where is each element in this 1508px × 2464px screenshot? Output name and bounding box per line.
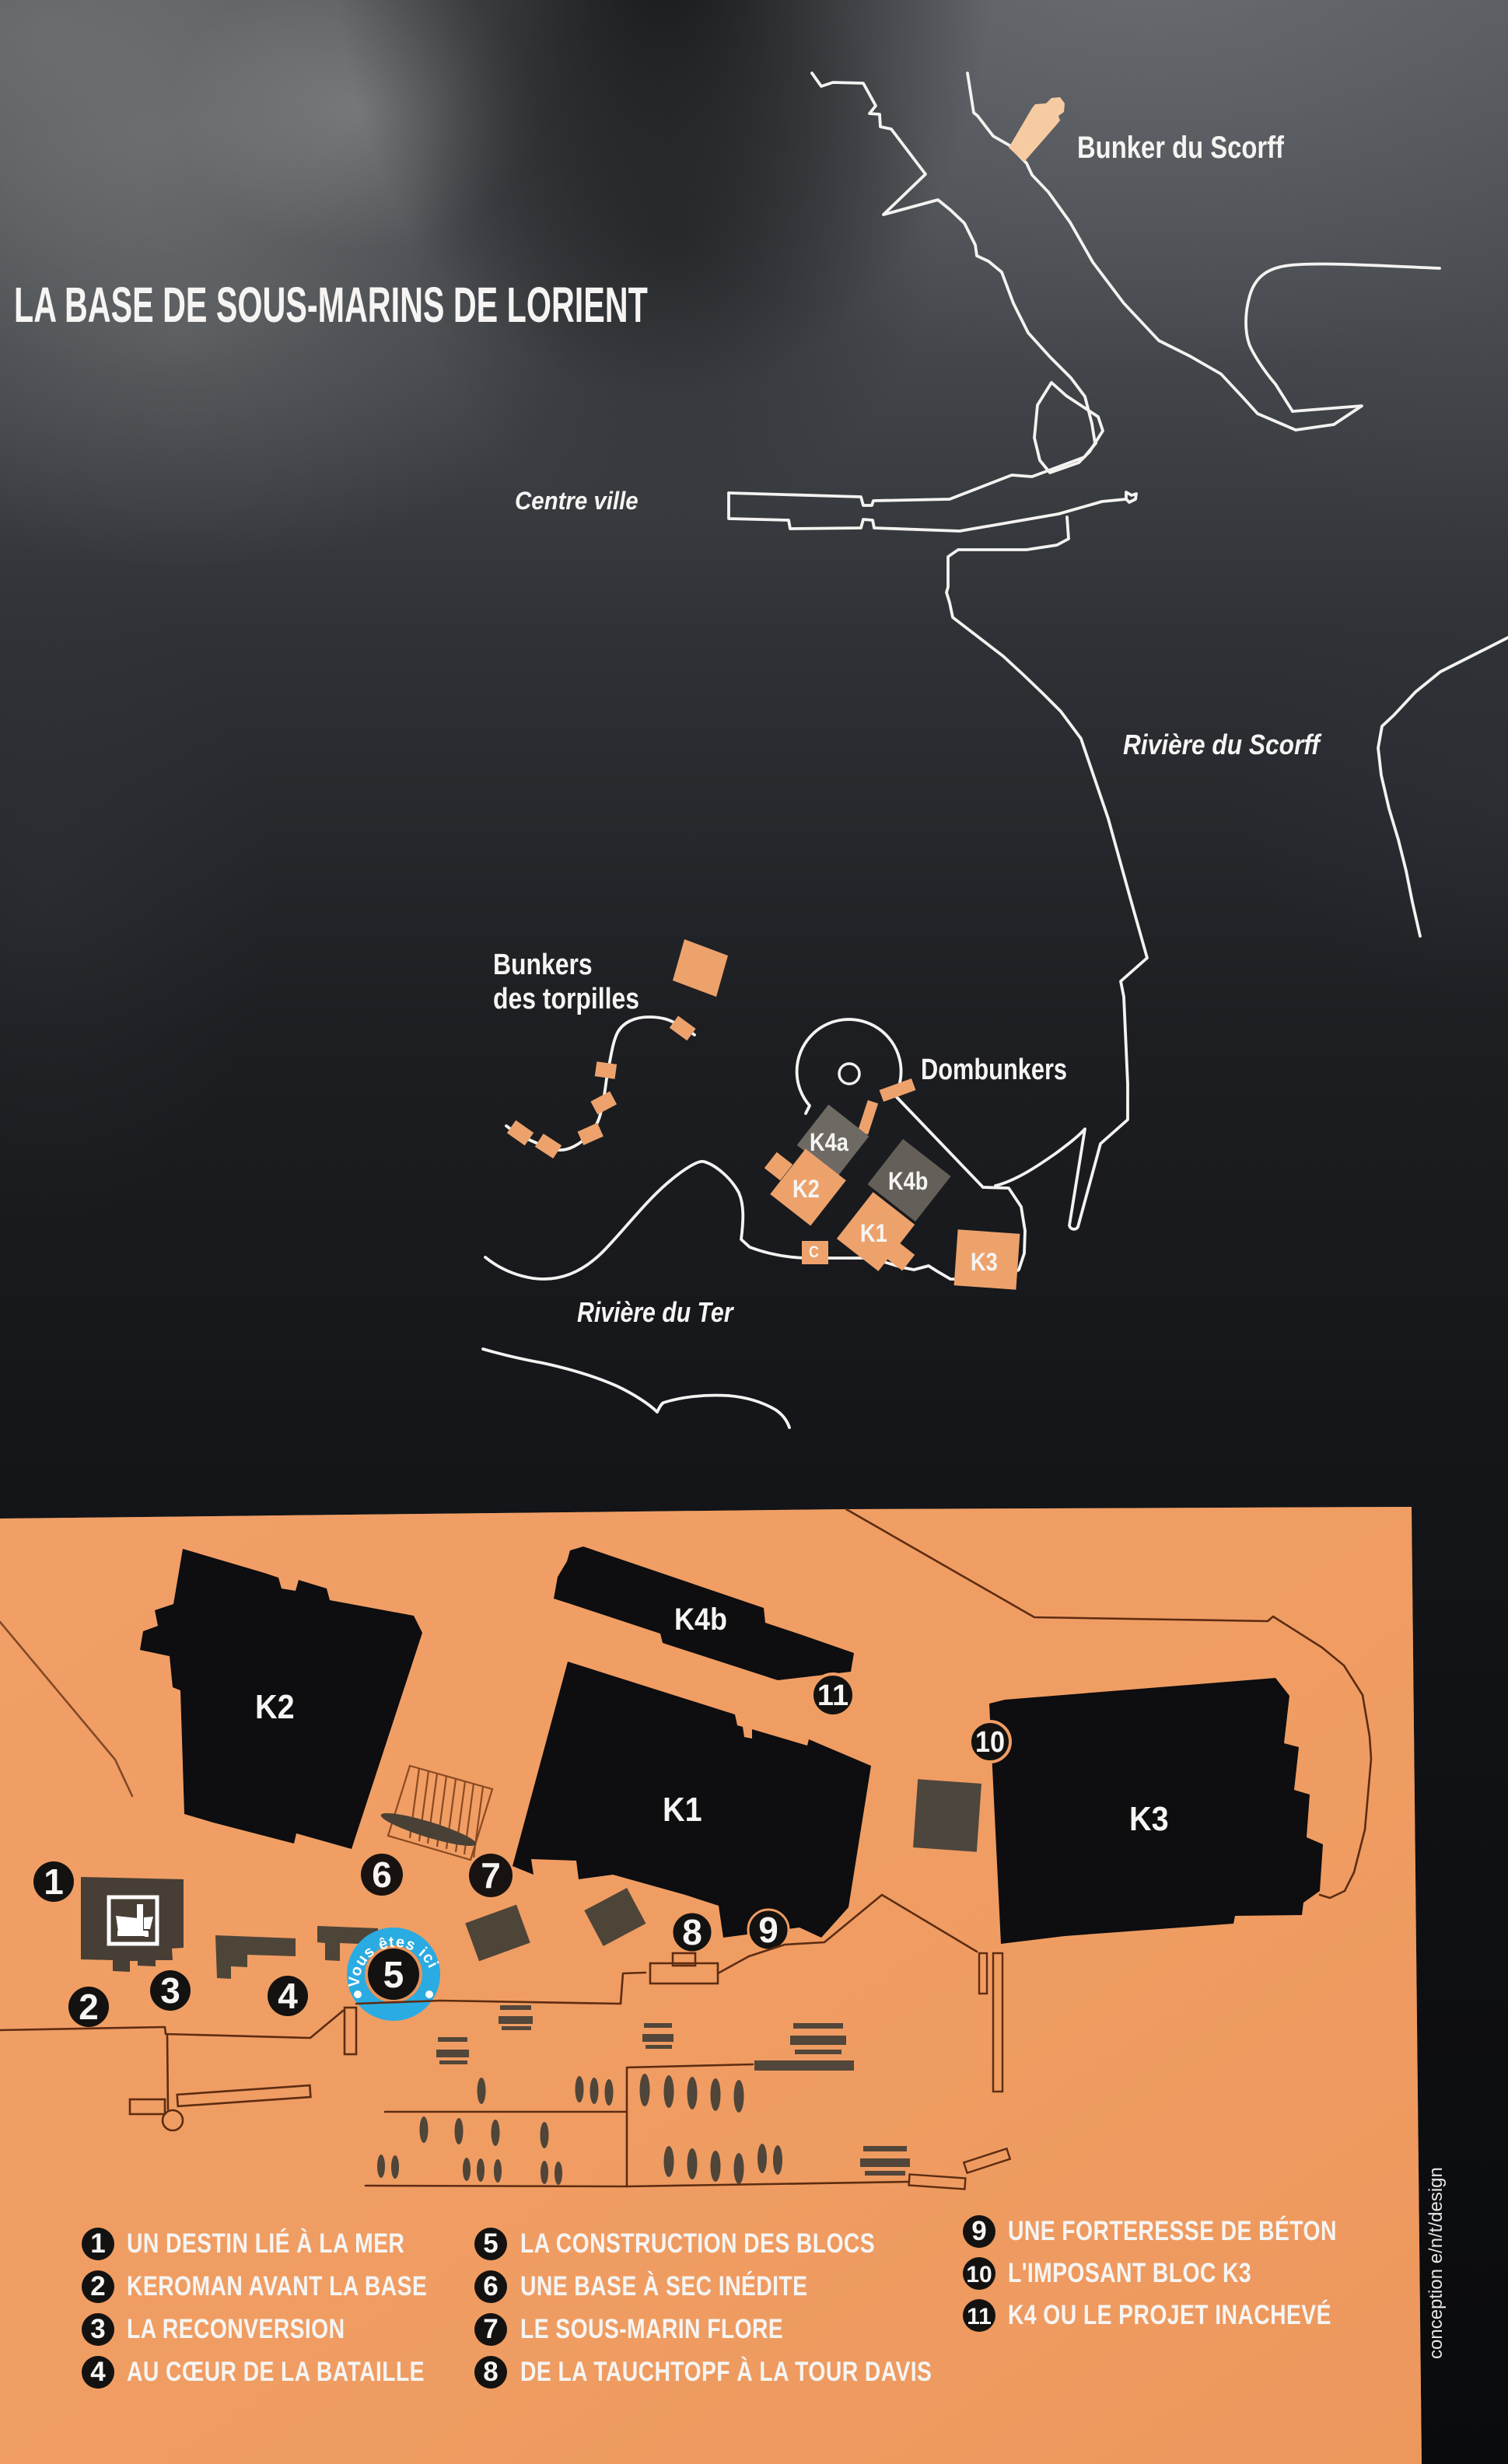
svg-text:2: 2 [79,1987,99,2027]
svg-text:2: 2 [90,2271,105,2301]
svg-text:Rivière du Scorff: Rivière du Scorff [1123,729,1322,760]
svg-text:UN DESTIN LIÉ À LA MER: UN DESTIN LIÉ À LA MER [127,2228,404,2259]
svg-text:LE SOUS-MARIN FLORE: LE SOUS-MARIN FLORE [520,2313,783,2344]
svg-text:K3: K3 [971,1249,998,1277]
svg-text:Bunker du Scorff: Bunker du Scorff [1077,130,1285,165]
svg-text:LA BASE DE SOUS-MARINS DE LORI: LA BASE DE SOUS-MARINS DE LORIENT [14,278,648,333]
svg-text:K3: K3 [1129,1799,1169,1837]
svg-text:4: 4 [278,1976,298,2016]
svg-text:8: 8 [682,1912,702,1952]
svg-text:Centre ville: Centre ville [515,487,639,515]
svg-text:K1: K1 [663,1790,702,1828]
svg-text:6: 6 [483,2271,498,2301]
svg-text:K2: K2 [255,1687,295,1725]
svg-text:K4b: K4b [674,1602,727,1637]
svg-text:7: 7 [481,1855,501,1896]
svg-text:7: 7 [483,2314,498,2344]
svg-text:K1: K1 [860,1220,887,1248]
svg-text:Rivière du Ter: Rivière du Ter [577,1298,734,1329]
svg-text:9: 9 [758,1910,778,1950]
svg-text:LA CONSTRUCTION DES BLOCS: LA CONSTRUCTION DES BLOCS [520,2228,875,2259]
svg-text:UNE FORTERESSE DE BÉTON: UNE FORTERESSE DE BÉTON [1008,2215,1337,2246]
svg-text:11: 11 [967,2304,992,2329]
svg-text:UNE BASE À SEC INÉDITE: UNE BASE À SEC INÉDITE [520,2270,807,2301]
svg-text:K4a: K4a [810,1129,848,1157]
svg-text:11: 11 [817,1679,848,1712]
svg-text:DE LA TAUCHTOPF À LA TOUR DAVI: DE LA TAUCHTOPF À LA TOUR DAVIS [520,2356,932,2387]
svg-text:1: 1 [44,1861,64,1902]
svg-text:3: 3 [160,1970,180,2011]
svg-text:1: 1 [90,2228,105,2259]
svg-text:Dombunkers: Dombunkers [921,1054,1067,1086]
svg-text:10: 10 [966,2262,992,2288]
svg-text:AU CŒUR DE LA BATAILLE: AU CŒUR DE LA BATAILLE [127,2356,425,2387]
svg-text:10: 10 [975,1725,1005,1758]
svg-text:LA RECONVERSION: LA RECONVERSION [127,2313,345,2344]
svg-text:5: 5 [383,1955,404,1996]
svg-text:L'IMPOSANT BLOC K3: L'IMPOSANT BLOC K3 [1008,2257,1251,2288]
svg-text:K4b: K4b [888,1168,928,1196]
svg-text:C: C [809,1243,819,1262]
svg-text:6: 6 [372,1854,392,1895]
svg-text:conception e/n/t/design: conception e/n/t/design [1426,2167,1447,2359]
svg-text:des torpilles: des torpilles [493,982,639,1015]
svg-text:3: 3 [90,2314,105,2344]
svg-text:Bunkers: Bunkers [493,948,593,980]
svg-text:4: 4 [90,2357,106,2387]
svg-text:8: 8 [483,2357,498,2387]
svg-text:5: 5 [483,2228,498,2259]
svg-text:K4 OU LE PROJET INACHEVÉ: K4 OU LE PROJET INACHEVÉ [1008,2299,1331,2330]
svg-text:KEROMAN AVANT LA BASE: KEROMAN AVANT LA BASE [127,2270,427,2301]
svg-text:9: 9 [971,2216,986,2246]
svg-text:K2: K2 [792,1176,820,1204]
